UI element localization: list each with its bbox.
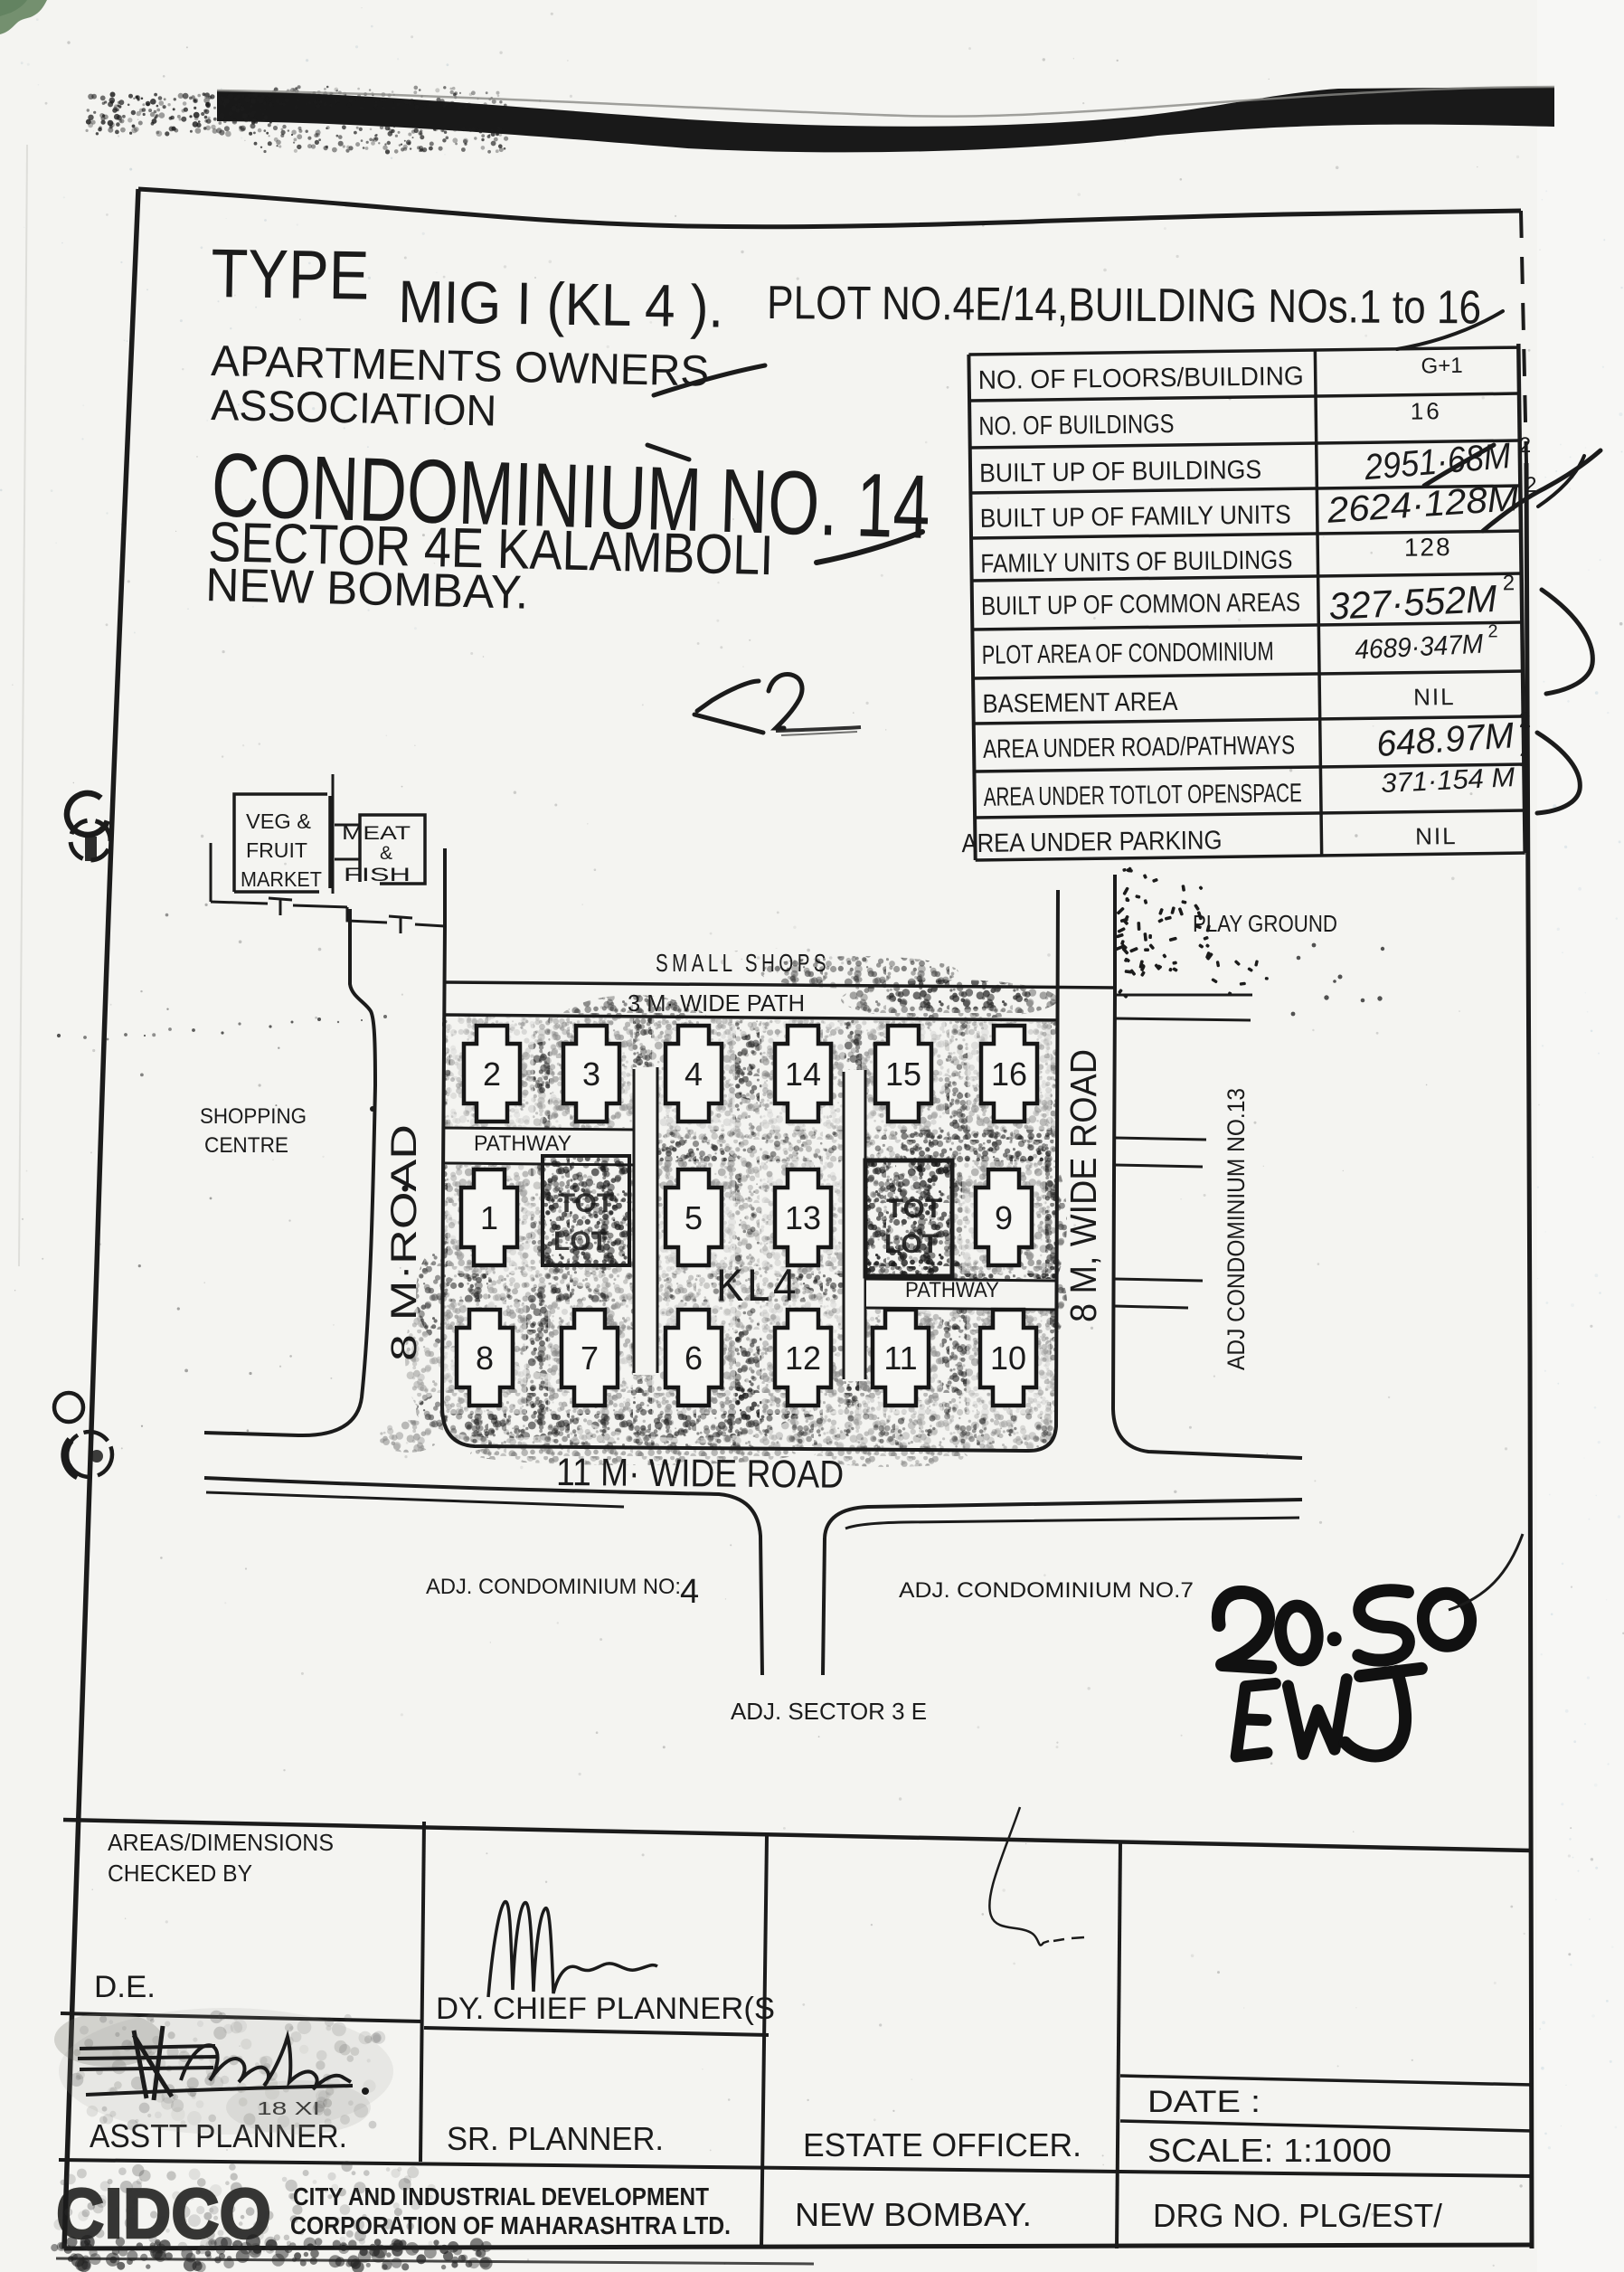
svg-text:4: 4	[685, 1056, 703, 1093]
svg-text:3: 3	[582, 1056, 600, 1093]
svg-text:AREA UNDER TOTLOT OPENSPACE: AREA UNDER TOTLOT OPENSPACE	[984, 779, 1302, 812]
svg-text:SMALL SHOPS: SMALL SHOPS	[656, 949, 830, 977]
svg-text:11 M· WIDE ROAD: 11 M· WIDE ROAD	[556, 1451, 844, 1497]
svg-text:G+1: G+1	[1421, 354, 1462, 379]
svg-text:2: 2	[1503, 571, 1515, 595]
svg-text:KL4: KL4	[716, 1260, 799, 1311]
svg-text:PLOT AREA OF CONDOMINIUM: PLOT AREA OF CONDOMINIUM	[982, 638, 1274, 670]
svg-text:NO. OF FLOORS/BUILDING: NO. OF FLOORS/BUILDING	[978, 362, 1304, 395]
svg-text:TOT: TOT	[558, 1188, 614, 1218]
svg-text:DATE :: DATE :	[1147, 2085, 1260, 2119]
svg-text:2: 2	[1487, 621, 1497, 641]
svg-text:PLAY GROUND: PLAY GROUND	[1193, 910, 1337, 937]
svg-text:TYPE: TYPE	[211, 235, 370, 315]
svg-text:LOT: LOT	[884, 1229, 939, 1259]
svg-text:SCALE: 1:1000: SCALE: 1:1000	[1147, 2132, 1392, 2169]
svg-text:8 M·ROAD: 8 M·ROAD	[384, 1124, 424, 1361]
svg-text:NIL: NIL	[1413, 683, 1456, 711]
svg-text:16: 16	[1411, 397, 1442, 424]
svg-text:ADJ. CONDOMINIUM NO.7: ADJ. CONDOMINIUM NO.7	[899, 1578, 1194, 1603]
svg-text:327·552M: 327·552M	[1327, 577, 1497, 628]
svg-text:9: 9	[995, 1199, 1013, 1236]
svg-text:MARKET: MARKET	[241, 867, 322, 891]
svg-text:8 M, WIDE ROAD: 8 M, WIDE ROAD	[1062, 1049, 1104, 1322]
svg-text:FAMILY UNITS OF BUILDINGS: FAMILY UNITS OF BUILDINGS	[980, 545, 1292, 579]
svg-text:LOT: LOT	[553, 1226, 608, 1256]
svg-text:BUILT UP OF FAMILY UNITS: BUILT UP OF FAMILY UNITS	[980, 500, 1291, 534]
svg-text:AREA UNDER ROAD/PATHWAYS: AREA UNDER ROAD/PATHWAYS	[983, 731, 1295, 764]
svg-text:ESTATE OFFICER.: ESTATE OFFICER.	[803, 2126, 1081, 2163]
svg-text:NIL: NIL	[1415, 822, 1458, 850]
svg-text:2: 2	[1519, 748, 1531, 771]
svg-text:CHECKED BY: CHECKED BY	[108, 1860, 252, 1887]
svg-text:MEAT: MEAT	[342, 823, 411, 844]
svg-text:16: 16	[991, 1056, 1027, 1093]
svg-text:15: 15	[885, 1056, 921, 1093]
svg-text:NEW BOMBAY.: NEW BOMBAY.	[795, 2196, 1032, 2233]
svg-text:ADJ CONDOMINIUM NO.13: ADJ CONDOMINIUM NO.13	[1223, 1088, 1250, 1370]
svg-text:FISH: FISH	[344, 865, 411, 885]
svg-text:1: 1	[480, 1199, 498, 1236]
svg-text:13: 13	[785, 1199, 821, 1236]
svg-text:PLOT NO.4E/14,BUILDING NOs.1 t: PLOT NO.4E/14,BUILDING NOs.1 to 16	[767, 277, 1481, 335]
svg-text:5: 5	[685, 1199, 703, 1236]
svg-text:128: 128	[1404, 533, 1452, 562]
svg-text:4689·347M: 4689·347M	[1355, 630, 1484, 666]
svg-text:7: 7	[581, 1340, 599, 1377]
svg-text:SR. PLANNER.: SR. PLANNER.	[447, 2120, 664, 2157]
svg-text:&: &	[380, 843, 392, 864]
svg-text:AREAS/DIMENSIONS: AREAS/DIMENSIONS	[108, 1829, 334, 1856]
svg-text:2: 2	[1519, 433, 1532, 458]
svg-text:4: 4	[680, 1573, 699, 1611]
svg-text:ADJ. CONDOMINIUM NO:: ADJ. CONDOMINIUM NO:	[426, 1575, 681, 1599]
svg-text:NEW BOMBAY.: NEW BOMBAY.	[205, 559, 529, 620]
svg-text:2: 2	[1519, 708, 1532, 733]
svg-text:DY. CHIEF PLANNER(S: DY. CHIEF PLANNER(S	[436, 1992, 775, 2026]
svg-text:PATHWAY: PATHWAY	[905, 1278, 999, 1302]
svg-text:DRG NO. PLG/EST/: DRG NO. PLG/EST/	[1153, 2197, 1442, 2234]
svg-text:BASEMENT AREA: BASEMENT AREA	[982, 687, 1178, 719]
svg-text:ASSOCIATION: ASSOCIATION	[211, 382, 497, 436]
svg-text:10: 10	[990, 1340, 1026, 1377]
svg-text:VEG &: VEG &	[246, 809, 311, 833]
svg-text:12: 12	[785, 1340, 821, 1377]
svg-text:SHOPPING: SHOPPING	[200, 1104, 307, 1129]
svg-text:TOT: TOT	[886, 1194, 942, 1224]
svg-text:6: 6	[685, 1340, 703, 1377]
svg-text:11: 11	[883, 1340, 917, 1377]
svg-text:BUILT UP OF BUILDINGS: BUILT UP OF BUILDINGS	[979, 456, 1261, 488]
svg-text:FRUIT: FRUIT	[246, 838, 307, 862]
svg-text:ADJ. SECTOR 3 E: ADJ. SECTOR 3 E	[731, 1698, 927, 1725]
svg-text:14: 14	[785, 1056, 821, 1093]
svg-text:D.E.: D.E.	[94, 1970, 156, 2004]
svg-text:MIG I (KL 4 ).: MIG I (KL 4 ).	[398, 268, 724, 340]
svg-text:3 M· WIDE PATH: 3 M· WIDE PATH	[628, 989, 805, 1017]
svg-text:2: 2	[483, 1056, 501, 1093]
svg-text:PATHWAY: PATHWAY	[474, 1131, 571, 1156]
svg-text:8: 8	[476, 1340, 494, 1377]
svg-text:AREA UNDER PARKING: AREA UNDER PARKING	[961, 826, 1222, 858]
svg-text:NO. OF BUILDINGS: NO. OF BUILDINGS	[978, 410, 1174, 441]
svg-text:BUILT UP OF COMMON AREAS: BUILT UP OF COMMON AREAS	[981, 588, 1300, 621]
svg-text:CENTRE: CENTRE	[204, 1133, 288, 1158]
